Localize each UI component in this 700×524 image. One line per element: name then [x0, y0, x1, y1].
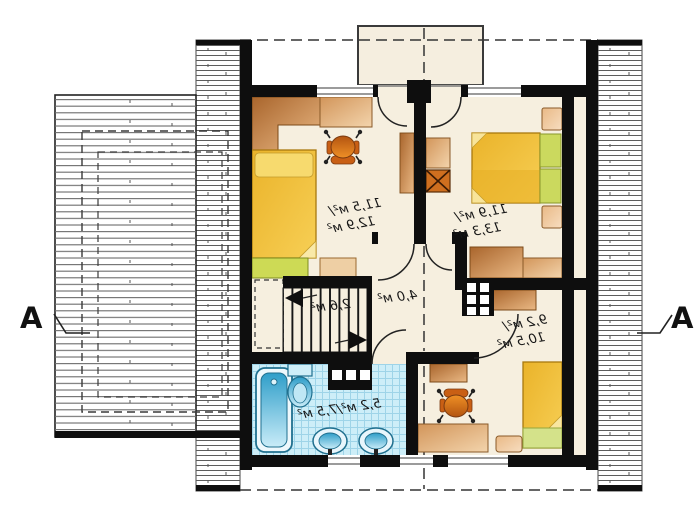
- bathtub: [256, 368, 292, 452]
- wall-bottom: [508, 455, 586, 467]
- roof-right-eave-strip: [598, 40, 642, 491]
- window-bottom-3: [448, 455, 508, 467]
- knee-wall-right: [562, 97, 574, 455]
- wall-bottom: [252, 455, 328, 467]
- wall-between-bedrooms: [414, 97, 426, 244]
- wall-top: [461, 85, 468, 97]
- desk: [320, 97, 372, 127]
- nightstand: [542, 206, 562, 228]
- section-letter: A: [20, 301, 43, 335]
- wall-stairs-top: [283, 276, 372, 288]
- wall-exterior-right: [586, 40, 598, 470]
- wall-hall-bottom: [406, 352, 479, 364]
- wall-bottom: [360, 455, 400, 467]
- bed: [523, 362, 562, 448]
- roof-left-eave-strip: [196, 40, 240, 491]
- washer-counter: [328, 364, 372, 390]
- window-top-right: [468, 85, 521, 97]
- side-table: [320, 258, 356, 278]
- pillow: [540, 134, 561, 167]
- section-letter: A: [671, 301, 694, 335]
- desk: [418, 424, 488, 452]
- chimney-flue: [462, 278, 494, 316]
- dresser: [523, 258, 562, 278]
- folding-chair: [426, 170, 450, 192]
- wall-top: [373, 85, 378, 97]
- dormer-balcony: [358, 26, 483, 85]
- wall-top: [521, 85, 586, 97]
- wall-bathroom-right: [406, 364, 418, 455]
- floor-plan-canvas: A A 11,5 м²/ 12,9 м² 11,9 м²/ 13,3 м² 9,…: [0, 0, 700, 524]
- window-bottom-2: [400, 455, 433, 467]
- nightstand: [496, 436, 522, 452]
- wall-stairs-side: [367, 276, 372, 364]
- wardrobe: [470, 247, 523, 278]
- bed: [252, 150, 316, 258]
- wall-hall-top: [372, 232, 378, 244]
- window-bottom-1: [328, 455, 360, 467]
- wall-hall-right: [455, 244, 467, 278]
- wall-exterior-left: [240, 40, 252, 470]
- desk: [426, 138, 450, 168]
- wardrobe: [492, 290, 536, 310]
- floor-plan-drawing: A A 11,5 м²/ 12,9 м² 11,9 м²/ 13,3 м² 9,…: [0, 0, 700, 524]
- section-marker-right: A: [637, 301, 694, 335]
- wall-top: [252, 85, 317, 97]
- wardrobe: [430, 364, 467, 382]
- wall-stairs-bottom: [252, 352, 372, 364]
- pillow: [540, 169, 561, 203]
- window-top-left: [317, 85, 373, 97]
- wardrobe: [400, 133, 414, 193]
- green-cabinet: [252, 258, 308, 278]
- toilet: [288, 364, 312, 407]
- nightstand: [542, 108, 562, 130]
- wall-bottom: [433, 455, 448, 467]
- roof-void-band: [574, 97, 586, 455]
